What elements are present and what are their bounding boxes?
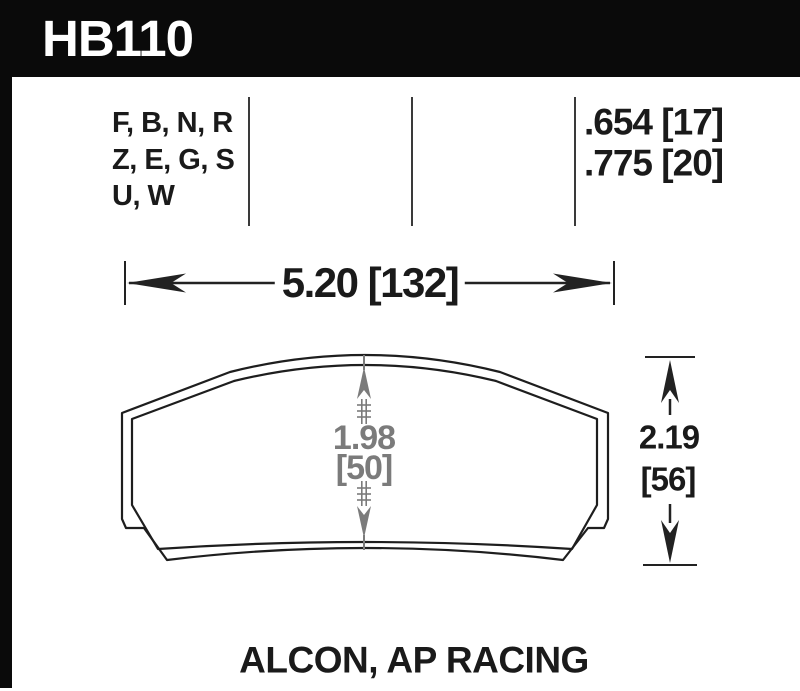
catalog-diagram-page: HB110 — [0, 0, 800, 691]
pad-thickness-value-1: .654 [17] — [584, 104, 723, 141]
down-arrowhead-gray-icon — [357, 506, 371, 538]
compound-codes-line-3: U, W — [112, 182, 174, 211]
compound-codes-line-1: F, B, N, R — [112, 109, 233, 138]
center-dimension-label-mm: [50] — [336, 451, 392, 485]
table-separator-lines — [249, 97, 575, 226]
compound-codes-line-2: Z, E, G, S — [112, 146, 234, 175]
up-arrowhead-icon — [661, 360, 679, 403]
down-arrowhead-icon — [661, 520, 679, 563]
height-dimension-label-mm: [56] — [641, 463, 696, 496]
applications-label: ALCON, AP RACING — [239, 642, 589, 679]
pad-thickness-value-2: .775 [20] — [584, 145, 723, 182]
up-arrowhead-gray-icon — [357, 367, 371, 399]
height-dimension-label-in: 2.19 — [639, 421, 699, 454]
width-dimension-label: 5.20 [132] — [275, 262, 465, 304]
